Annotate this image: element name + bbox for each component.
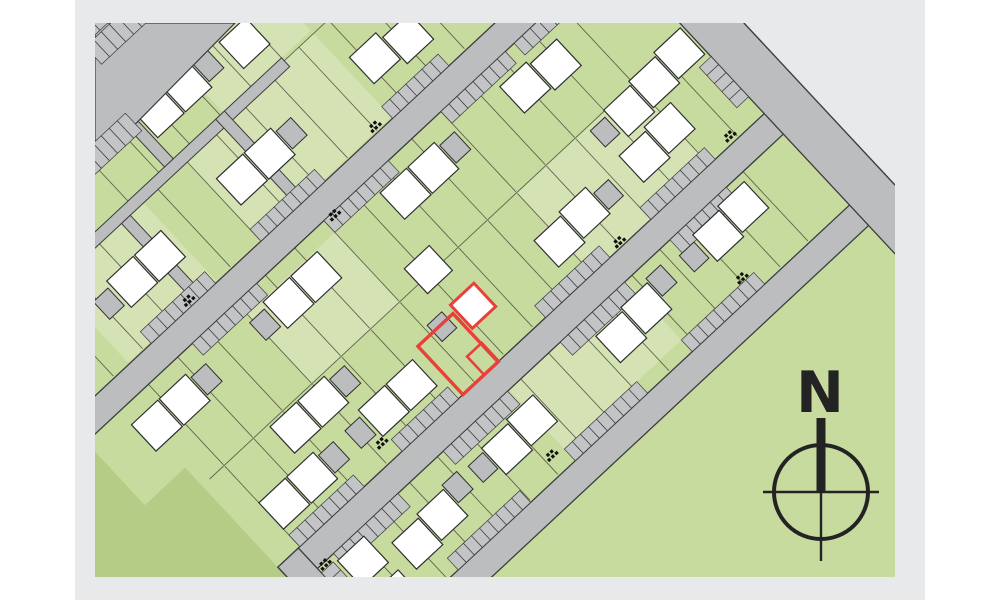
page-background: N	[0, 0, 1000, 600]
compass-north-label: N	[796, 360, 844, 426]
plot-boundary-line	[6, 320, 84, 403]
compass-north-needle	[817, 418, 826, 492]
plot-boundary-line	[0, 347, 55, 430]
site-plan-svg: N	[0, 0, 1000, 600]
site-plan-map	[0, 0, 1000, 600]
